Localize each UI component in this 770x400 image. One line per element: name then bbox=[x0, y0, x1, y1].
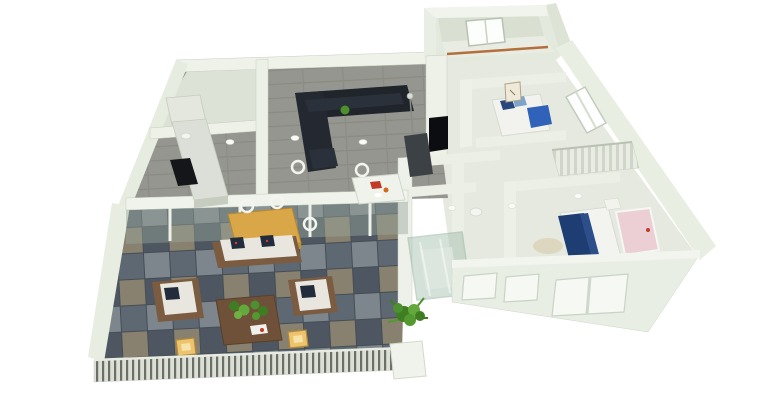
patio-lamp-2-glow bbox=[293, 335, 303, 343]
kitchen-sink bbox=[181, 133, 191, 139]
floor-lamp-head bbox=[407, 93, 413, 99]
ceiling-light-5 bbox=[508, 204, 516, 209]
patio-armchair-left-pillow bbox=[164, 287, 180, 300]
ceiling-light-3 bbox=[226, 140, 234, 145]
ceiling-light-4 bbox=[448, 206, 456, 211]
ceiling-light-6 bbox=[574, 194, 582, 199]
floorplan-screenshot bbox=[0, 0, 770, 400]
patio-table-plant-6 bbox=[252, 312, 260, 320]
tv-screen bbox=[429, 116, 448, 152]
ceiling-light-2 bbox=[359, 140, 367, 145]
master-rug bbox=[533, 238, 563, 254]
wall-wc bbox=[452, 159, 464, 234]
scene-root bbox=[88, 3, 716, 382]
patio-coffee-table bbox=[216, 295, 282, 345]
ceiling-light-1 bbox=[291, 136, 299, 141]
houseplant-small bbox=[341, 106, 350, 115]
facade-window-b bbox=[504, 274, 539, 302]
patio-sofa-pillow-1 bbox=[230, 237, 245, 249]
coffee-table-dish bbox=[374, 193, 382, 197]
floorplan-scene bbox=[0, 0, 770, 400]
pink-dresser-handle bbox=[646, 228, 650, 232]
master-nightstand bbox=[604, 198, 621, 210]
patio-lamp-1-glow bbox=[181, 343, 191, 351]
coffee-table-orange-item bbox=[384, 188, 389, 193]
wall-kitchen-living bbox=[256, 59, 268, 207]
patio-table-plant-3 bbox=[251, 301, 260, 310]
coffee-table-red-tray bbox=[370, 181, 382, 189]
palm-leaves-3 bbox=[393, 303, 403, 313]
toilet bbox=[470, 208, 482, 216]
palm-leaves-4 bbox=[404, 314, 416, 326]
wall-art-frame bbox=[505, 82, 521, 102]
wall-bedroom-left bbox=[460, 79, 472, 148]
patio-armchair-right-pillow bbox=[300, 285, 316, 298]
patio-table-plant-5 bbox=[234, 311, 242, 319]
patio-table-red-item bbox=[260, 328, 264, 332]
sofa-chaise-cushion bbox=[309, 148, 338, 169]
wall-master-left bbox=[504, 181, 516, 268]
patio-table-plant-1 bbox=[229, 301, 239, 311]
coffee-table bbox=[352, 174, 405, 204]
patio-sofa-pillow-dot-1 bbox=[235, 242, 237, 244]
palm-leaves-5 bbox=[415, 311, 425, 321]
wall-wing-top bbox=[424, 5, 548, 18]
patio-sofa-pillow-dot-2 bbox=[266, 240, 268, 242]
small-bed-blanket bbox=[527, 105, 552, 128]
planter-box bbox=[390, 341, 426, 379]
facade-window-a bbox=[462, 273, 497, 300]
